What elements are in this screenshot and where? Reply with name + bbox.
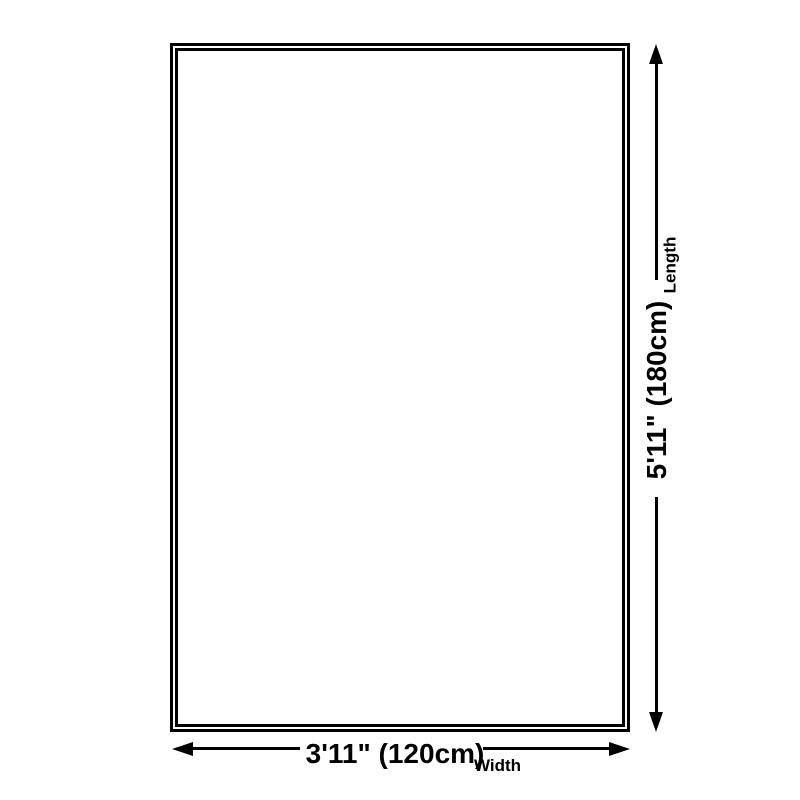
length-label: Length xyxy=(662,237,679,294)
rug-outline-outer xyxy=(170,43,630,732)
width-label: Width xyxy=(474,757,521,774)
width-value: 3'11" (120cm) xyxy=(306,740,485,768)
length-value: 5'11" (180cm) xyxy=(643,301,671,480)
rug-size-diagram: Length 5'11" (180cm) 3'11" (120cm) Width xyxy=(0,0,800,800)
width-dimension-line-right xyxy=(483,747,612,750)
arrow-down-icon xyxy=(649,712,663,732)
arrow-up-icon xyxy=(649,44,663,64)
length-dimension-line-top xyxy=(655,62,658,280)
width-dimension-line-left xyxy=(190,747,300,750)
arrow-right-icon xyxy=(609,742,630,756)
rug-outline-inner xyxy=(175,48,625,727)
length-dimension-line-bottom xyxy=(655,497,658,713)
